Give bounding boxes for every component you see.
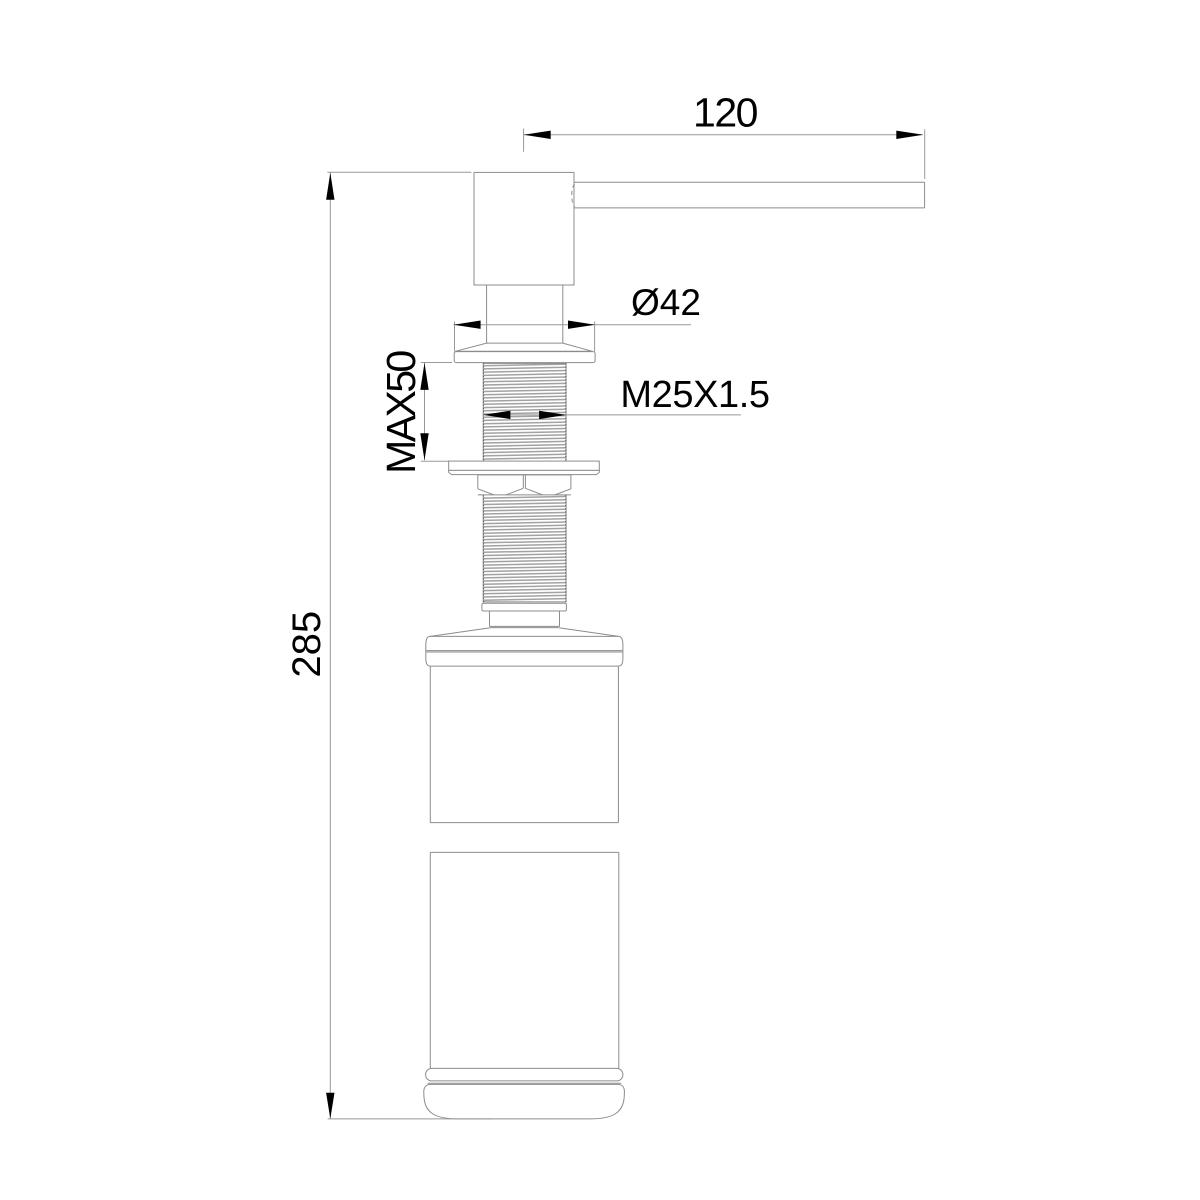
svg-text:MAX50: MAX50 [378,351,424,474]
svg-text:120: 120 [693,89,758,135]
svg-text:285: 285 [285,611,329,678]
svg-text:M25X1.5: M25X1.5 [620,374,769,416]
svg-text:Ø42: Ø42 [631,282,701,323]
